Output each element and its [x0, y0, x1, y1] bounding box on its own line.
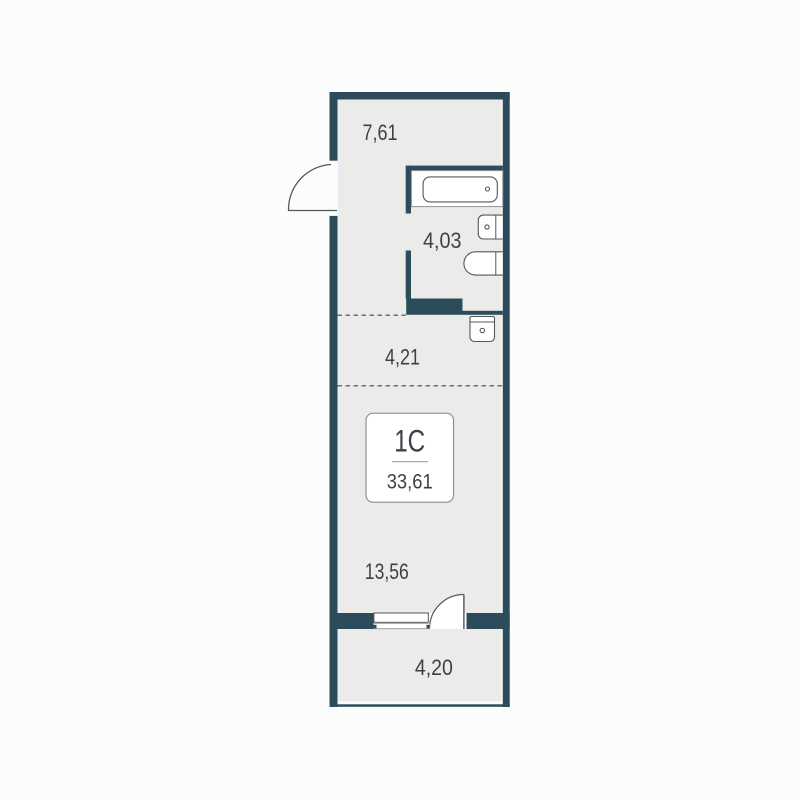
svg-text:4,20: 4,20 [415, 655, 453, 680]
svg-text:13,56: 13,56 [365, 559, 409, 584]
svg-text:1C: 1C [394, 423, 425, 459]
svg-text:4,21: 4,21 [385, 345, 420, 370]
svg-text:4,03: 4,03 [423, 228, 462, 253]
svg-text:33,61: 33,61 [387, 470, 433, 494]
svg-text:7,61: 7,61 [363, 120, 398, 145]
